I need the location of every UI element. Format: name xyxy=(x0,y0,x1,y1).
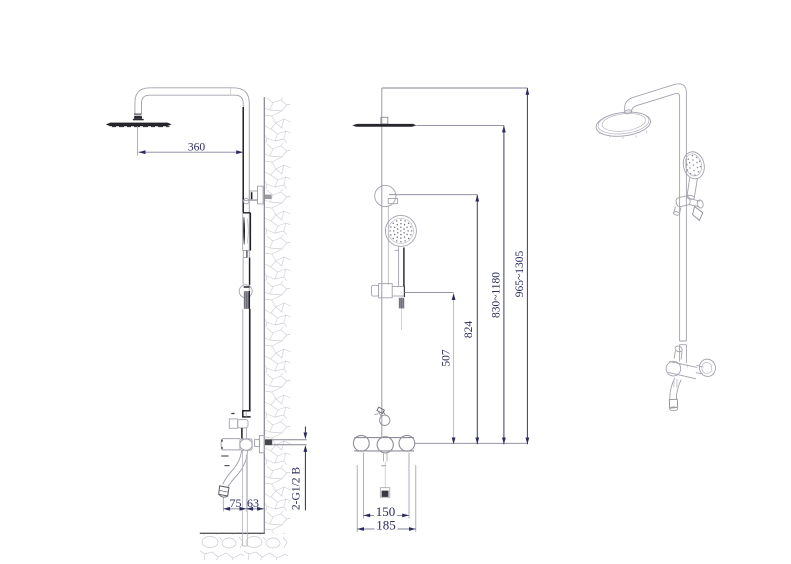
svg-text:965~1305: 965~1305 xyxy=(514,251,526,298)
svg-text:2-G1/2 B: 2-G1/2 B xyxy=(290,467,302,510)
svg-text:830~1180: 830~1180 xyxy=(490,272,502,318)
svg-text:75: 75 xyxy=(230,496,242,510)
svg-text:507: 507 xyxy=(440,349,452,367)
svg-text:185: 185 xyxy=(376,518,396,533)
svg-text:360: 360 xyxy=(188,141,206,153)
svg-text:63: 63 xyxy=(247,496,259,510)
svg-text:824: 824 xyxy=(463,321,475,339)
